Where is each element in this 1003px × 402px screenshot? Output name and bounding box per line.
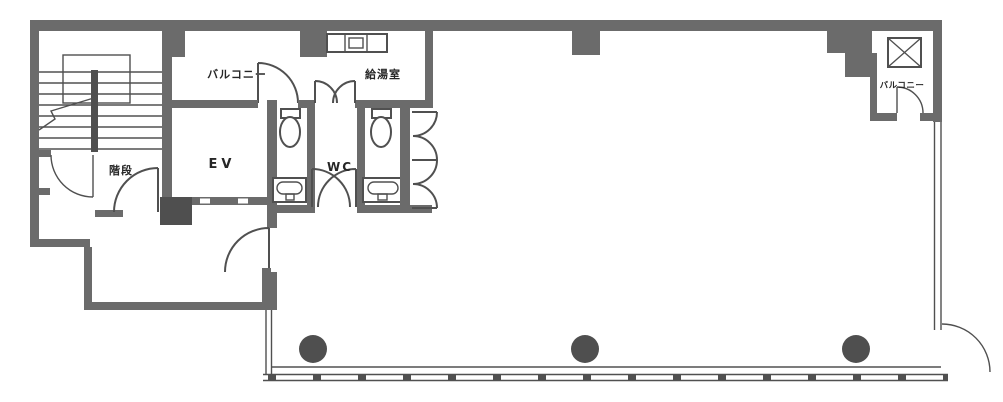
stair-treads bbox=[39, 72, 162, 149]
balcony-right-bottom-wall-right bbox=[920, 113, 940, 121]
left-wall-notch bbox=[39, 188, 50, 195]
closet-wall bbox=[400, 105, 410, 208]
closet-folding-doors bbox=[412, 112, 437, 208]
balcony-right-bottom-wall-left bbox=[870, 113, 897, 121]
hall-left-wall bbox=[84, 247, 92, 310]
window-right bbox=[935, 122, 942, 330]
stair-break-line bbox=[39, 97, 97, 130]
staircase: 階段 bbox=[39, 31, 172, 197]
floor-plan-canvas: 階段 バルコニー EV 給湯室 bbox=[0, 0, 1003, 402]
closet bbox=[400, 105, 437, 208]
hatch-box-diagonals bbox=[888, 38, 921, 67]
column-1 bbox=[299, 335, 327, 363]
wc-bottom-double-door bbox=[312, 169, 356, 207]
column-2 bbox=[571, 335, 599, 363]
top-wall bbox=[30, 20, 942, 31]
main-entry-door-arc bbox=[225, 228, 269, 272]
window-left bbox=[266, 310, 272, 374]
balcony-right-label: バルコニー bbox=[880, 80, 925, 91]
balcony-right-west-wall bbox=[870, 53, 877, 113]
ev-top-wall-right bbox=[298, 100, 315, 108]
stairs-label: 階段 bbox=[109, 163, 133, 177]
pier-balcony-right-small bbox=[827, 31, 845, 53]
main-room bbox=[262, 122, 990, 381]
kitchenette-bottom-wall bbox=[355, 100, 432, 108]
ev-corner-pier bbox=[160, 197, 192, 225]
toilet-label: WC bbox=[327, 160, 353, 174]
pier-balcony-right-large bbox=[845, 31, 872, 77]
wc-bottom-wall-left bbox=[267, 205, 315, 213]
ev-door-notch-2 bbox=[238, 199, 248, 204]
wc-top-double-door bbox=[315, 81, 355, 103]
floor-plan: 階段 バルコニー EV 給湯室 bbox=[0, 0, 1003, 402]
balcony-left: バルコニー bbox=[207, 63, 298, 103]
hall-wall-stub bbox=[95, 210, 123, 217]
column-3 bbox=[842, 335, 870, 363]
toilet-bowl-right bbox=[371, 117, 391, 147]
kitchenette-label: 給湯室 bbox=[365, 67, 401, 81]
balcony-right: バルコニー bbox=[870, 38, 940, 121]
stair-door-wall-stub bbox=[39, 150, 51, 157]
pier-kitchenette bbox=[300, 31, 327, 57]
pier-main-room bbox=[572, 31, 600, 55]
kitchenette-counter bbox=[327, 34, 387, 52]
ev-top-wall-left bbox=[162, 100, 258, 108]
elevator-label: EV bbox=[209, 157, 236, 172]
toilet-bowl-left bbox=[280, 117, 300, 147]
left-wing-bottom-wall bbox=[30, 239, 90, 247]
stair-door-arc bbox=[51, 155, 93, 197]
hall-bottom-wall bbox=[84, 302, 272, 310]
stair-center-rail bbox=[91, 70, 98, 152]
left-wall bbox=[30, 20, 39, 247]
right-wall-upper bbox=[933, 20, 942, 122]
kitchenette: 給湯室 bbox=[327, 31, 433, 108]
window-left-cap bbox=[262, 268, 271, 310]
exit-door-arc bbox=[942, 324, 990, 372]
kitchenette-east-wall bbox=[425, 31, 433, 108]
stair-east-wall bbox=[162, 31, 172, 197]
ev-door-notch-1 bbox=[200, 199, 210, 204]
hall bbox=[95, 168, 277, 310]
